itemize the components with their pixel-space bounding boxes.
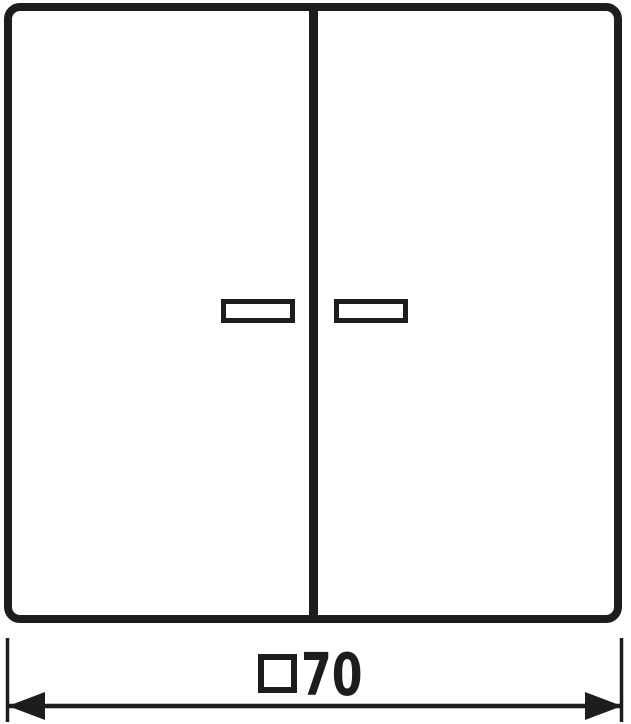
right-arrowhead-icon — [585, 692, 622, 720]
rocker-divider-line — [309, 6, 318, 618]
technical-drawing-canvas: 70 — [0, 0, 631, 724]
width-dimension-annotation — [0, 628, 631, 724]
right-lens-window — [334, 299, 408, 323]
left-arrowhead-icon — [8, 692, 45, 720]
left-lens-window — [221, 299, 295, 323]
